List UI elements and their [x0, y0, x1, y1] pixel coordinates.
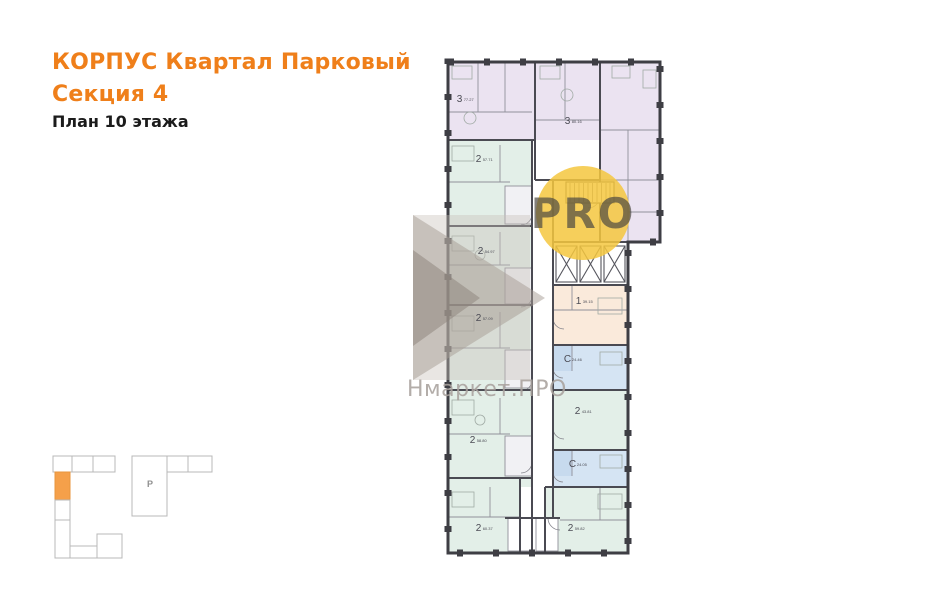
- key-plan-current-section: [55, 472, 70, 500]
- nmarket-logo-watermark: [413, 215, 545, 380]
- pro-badge-circle: [536, 166, 630, 260]
- parking-label: Р: [140, 479, 160, 489]
- key-plan: [53, 456, 212, 558]
- floor-plan-drawing: [0, 0, 941, 600]
- zone-right-2room-green-1: [553, 390, 628, 450]
- page: КОРПУС Квартал Парковый Секция 4 План 10…: [0, 0, 941, 600]
- zone-1room-orange: [553, 285, 628, 345]
